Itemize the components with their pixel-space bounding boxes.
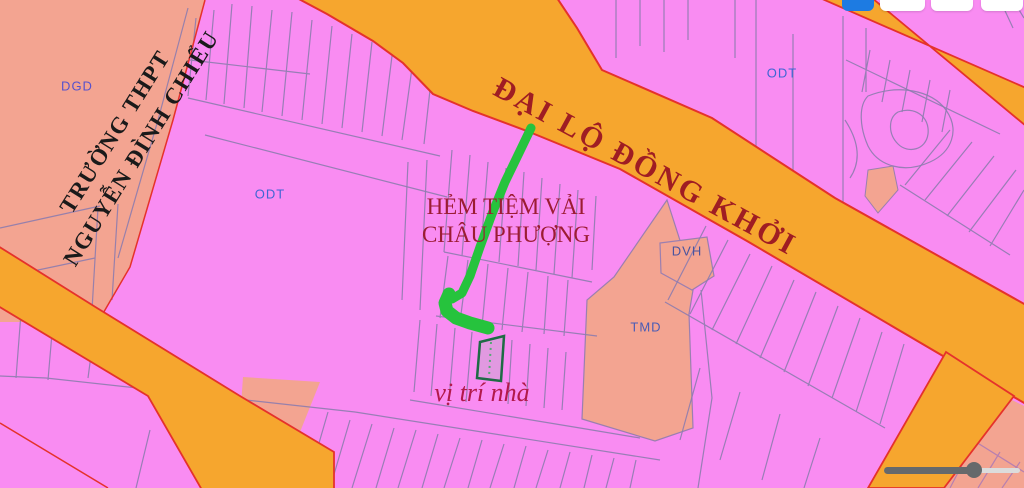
- toolbar-panel-button-2[interactable]: [931, 0, 973, 11]
- toolbar-panel-button-3[interactable]: [981, 0, 1023, 11]
- map-slider[interactable]: [884, 464, 1020, 476]
- slider-fill: [884, 467, 974, 474]
- slider-knob[interactable]: [966, 462, 982, 478]
- map-viewer: { "map": { "road_label": "ĐẠI LỘ ĐỒNG KH…: [0, 0, 1024, 488]
- toolbar-panel-button-1[interactable]: [880, 0, 925, 11]
- toolbar-primary-button[interactable]: [842, 0, 874, 11]
- map-canvas[interactable]: [0, 0, 1024, 488]
